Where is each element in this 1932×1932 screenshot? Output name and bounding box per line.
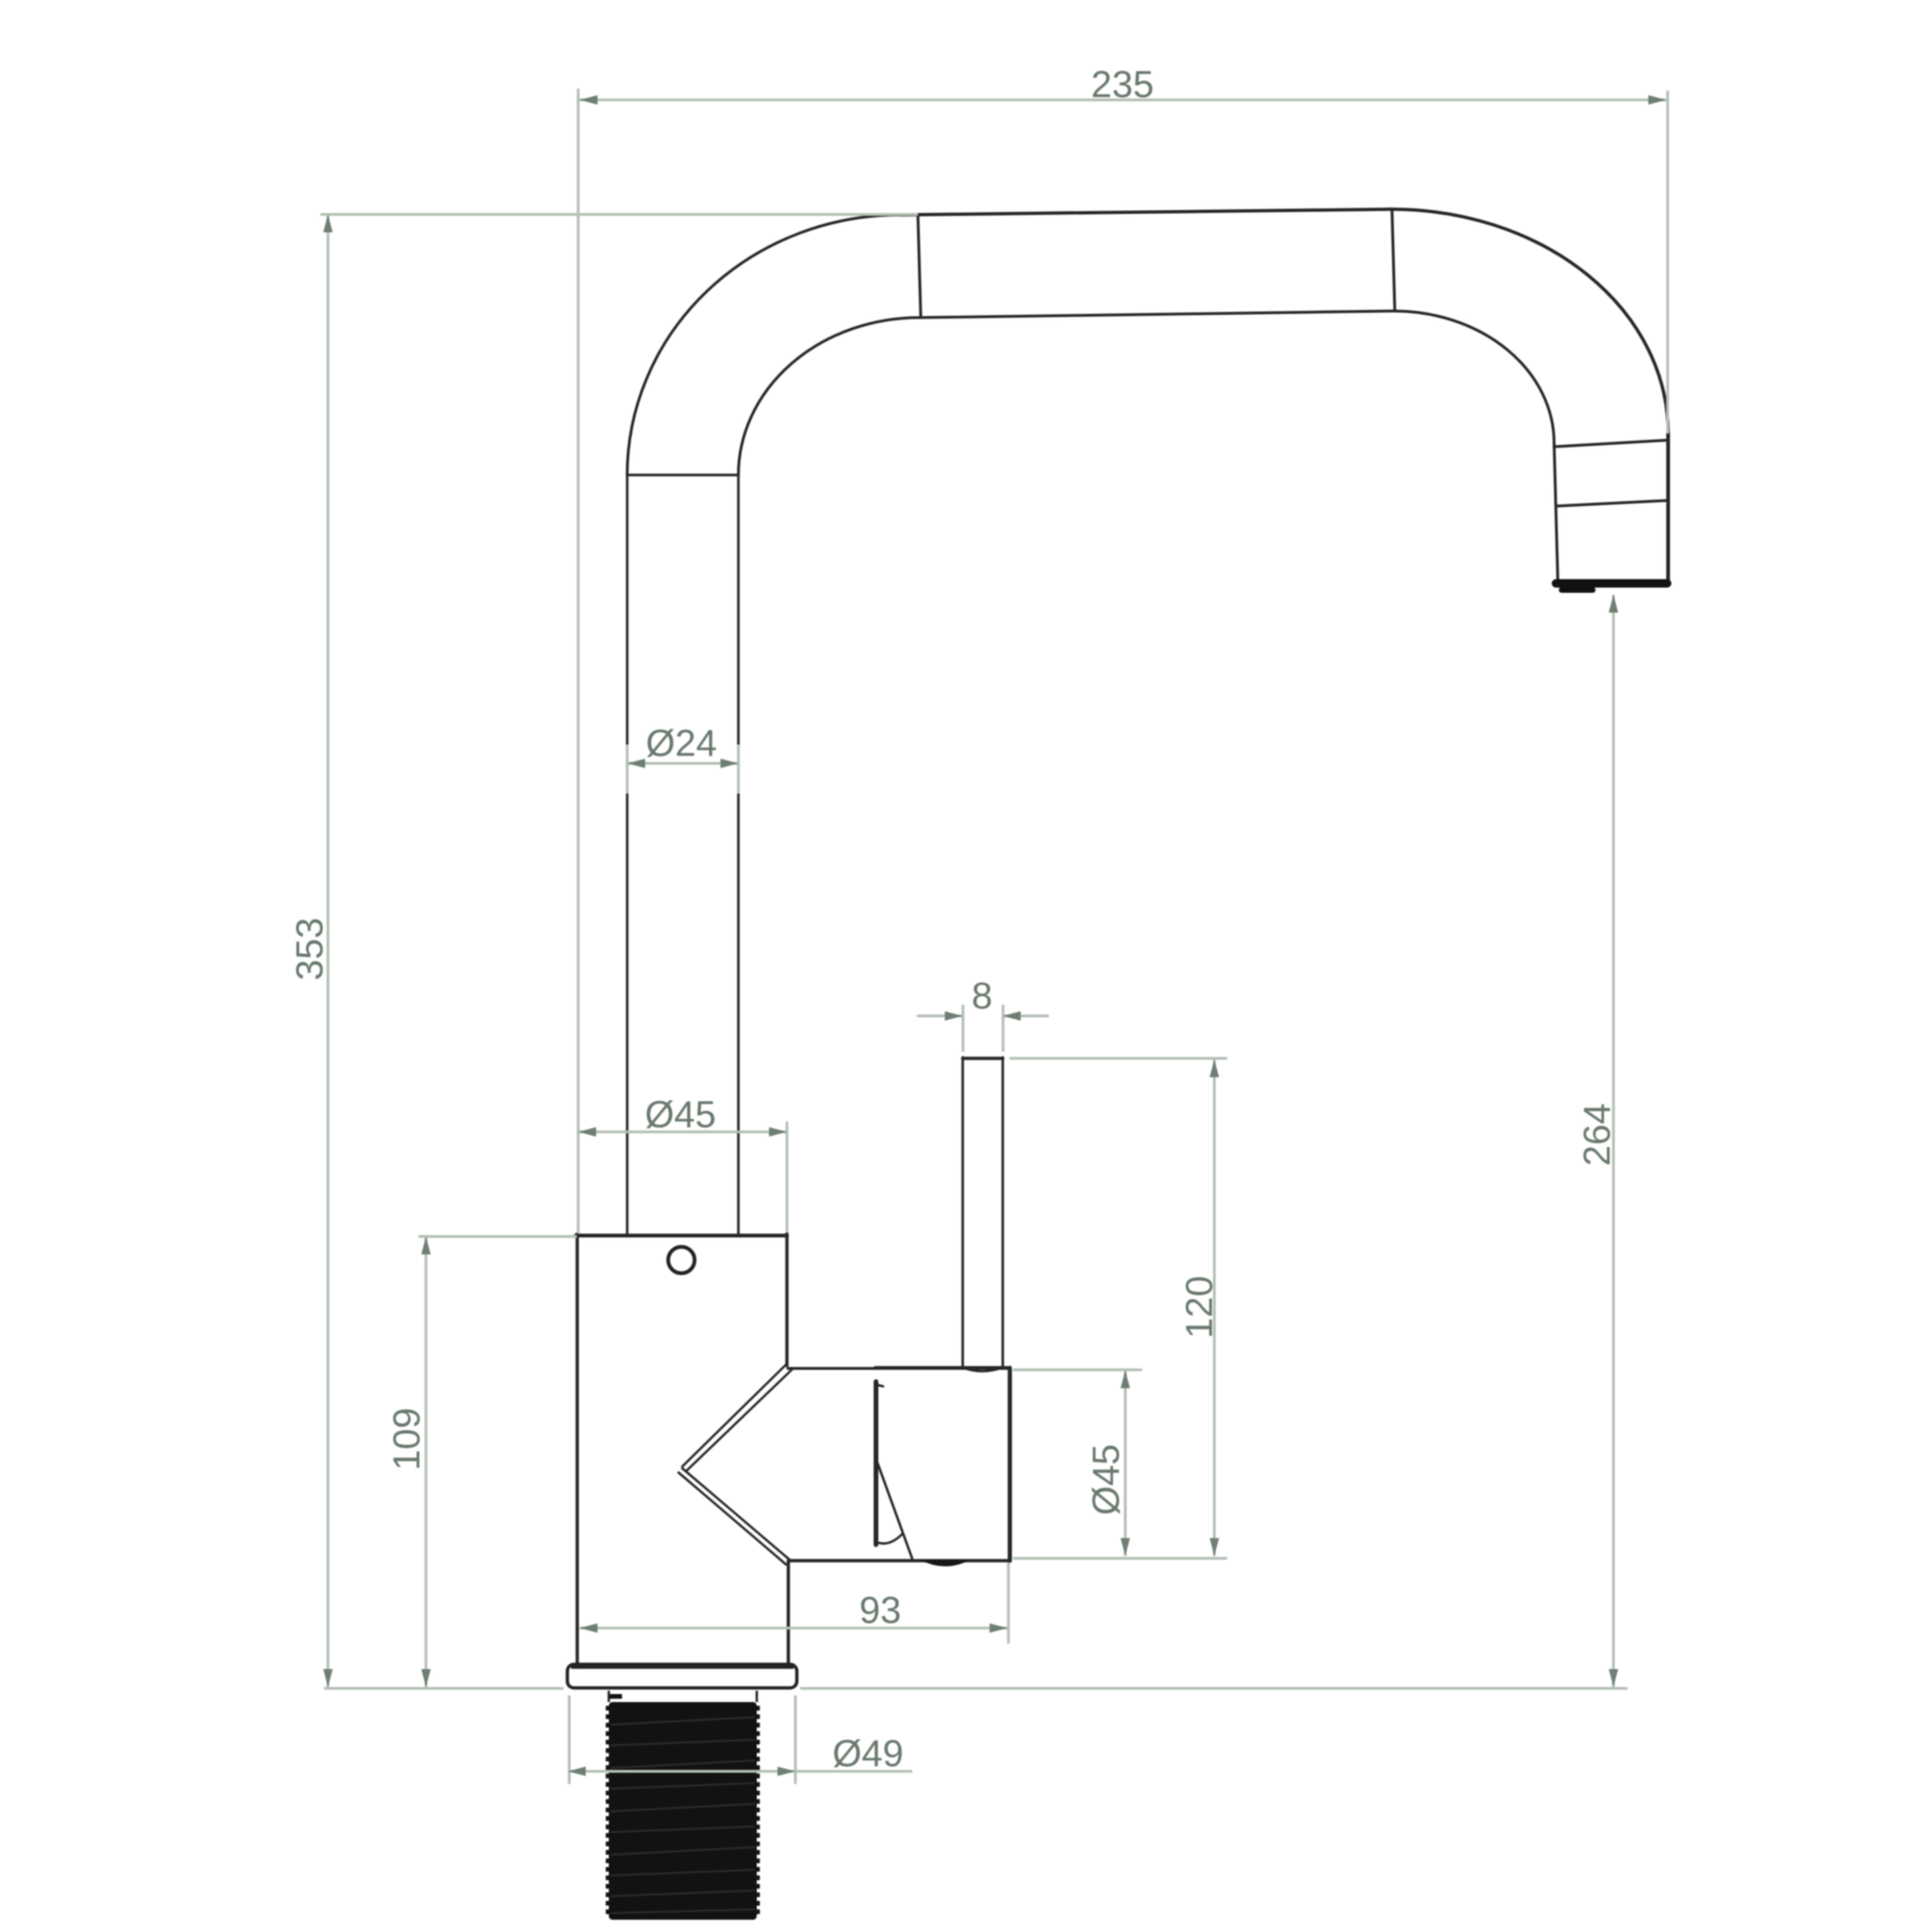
svg-text:120: 120: [1179, 1276, 1220, 1339]
svg-text:Ø49: Ø49: [832, 1733, 904, 1775]
svg-text:264: 264: [1577, 1104, 1618, 1167]
svg-text:Ø45: Ø45: [645, 1094, 716, 1136]
svg-text:353: 353: [289, 918, 331, 981]
svg-text:Ø24: Ø24: [646, 723, 717, 764]
svg-text:235: 235: [1091, 64, 1154, 106]
svg-text:8: 8: [972, 975, 992, 1017]
svg-text:109: 109: [386, 1408, 428, 1471]
svg-text:Ø45: Ø45: [1086, 1444, 1127, 1515]
svg-text:93: 93: [860, 1590, 902, 1631]
